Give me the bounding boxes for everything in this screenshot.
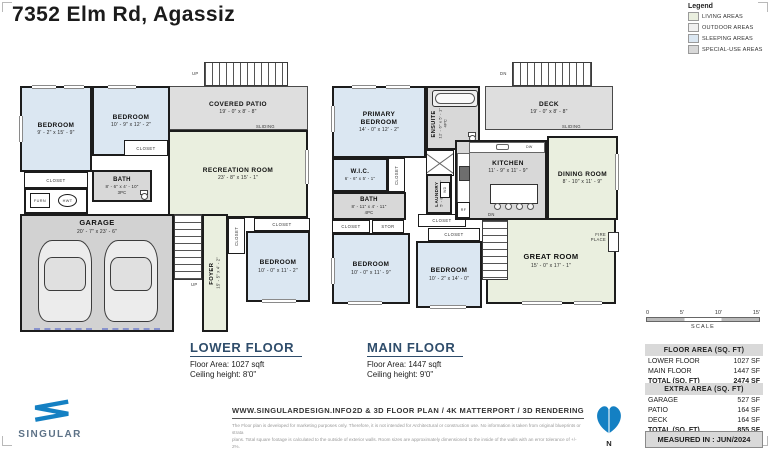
stool-icon <box>505 203 512 210</box>
table-row: PATIO164 SF <box>645 405 763 415</box>
room-dining: DINING ROOM 8' - 10" x 11' - 9" <box>547 136 618 220</box>
closet-label: CLOSET <box>388 158 405 192</box>
hot-water-tank-box: HWT <box>58 194 77 207</box>
closet-label: CLOSET <box>24 172 88 188</box>
window <box>19 116 23 142</box>
lower-floor-heading: LOWER FLOOR Floor Area: 1027 sqft Ceilin… <box>190 339 302 380</box>
legend-item-outdoor: OUTDOOR AREAS <box>688 23 768 32</box>
closet-label: CLOSET <box>254 218 310 231</box>
measured-date-badge: MEASURED IN : JUN/2024 <box>645 431 763 448</box>
extra-area-table: EXTRA AREA (SQ. FT) GARAGE527 SF PATIO16… <box>645 383 763 435</box>
floor-area-table: FLOOR AREA (SQ. FT) LOWER FLOOR1027 SF M… <box>645 344 763 386</box>
stove-icon <box>459 166 470 181</box>
scale-bar-graphic <box>646 317 760 322</box>
room-bedroom-bottom: BEDROOM 10' - 0" x 11' - 2" <box>246 231 310 302</box>
closet-label: CLOSET <box>332 220 370 233</box>
kitchen-label: KITCHEN 11' - 9" x 11' - 9" <box>472 160 544 174</box>
scale-ticks: 0 5' 10' 15' <box>646 310 760 316</box>
patio-stairs <box>204 62 288 86</box>
window <box>348 301 382 305</box>
stool-icon <box>494 203 501 210</box>
sliding-door-label: SLIDING <box>256 124 275 129</box>
bathtub-icon <box>432 90 478 107</box>
room-bedroom-left: BEDROOM 9' - 2" x 15' - 9" <box>20 86 92 172</box>
scale-bar: 0 5' 10' 15' SCALE <box>646 310 760 330</box>
legend-heading: Legend <box>688 3 768 10</box>
main-floor-plan: DN DECK 19' - 0" x 8' - 8" SLIDING PRIMA… <box>330 62 620 334</box>
storage-label: STOR <box>372 220 404 233</box>
main-floor-ceiling: Ceiling height: 9'0" <box>367 370 463 380</box>
window <box>32 85 56 89</box>
room-deck: DECK 19' - 0" x 8' - 8" <box>485 86 613 130</box>
window <box>574 301 602 305</box>
window <box>522 301 562 305</box>
brand-name: SINGULAR <box>8 429 92 440</box>
legend: Legend LIVING AREAS OUTDOOR AREAS SLEEPI… <box>688 3 768 56</box>
window <box>305 150 309 184</box>
bath-fixture-count: 3PC <box>118 190 127 195</box>
scale-label: SCALE <box>646 324 760 330</box>
outdoor-areas-swatch <box>688 23 699 32</box>
services-label: 2D & 3D FLOOR PLAN / 4K MATTERPORT / 3D … <box>352 406 584 415</box>
room-bath-main: BATH 8' - 11" x 4' - 11" 4PC <box>332 192 406 220</box>
fireplace-label: FIRE PLACE <box>582 232 606 243</box>
closet-label: CLOSET <box>124 140 168 156</box>
sliding-door-label: SLIDING <box>562 124 581 129</box>
table-row: DECK164 SF <box>645 415 763 425</box>
sleeping-areas-swatch <box>688 34 699 43</box>
room-wic: W.I.C. 6' - 6" x 5' - 1" <box>332 158 388 192</box>
main-floor-title: MAIN FLOOR <box>367 340 463 357</box>
room-recreation: RECREATION ROOM 23' - 8" x 15' - 1" <box>168 130 308 218</box>
interior-stairs-up <box>174 214 202 280</box>
stairs-up-label: UP <box>192 71 198 76</box>
table-row: LOWER FLOOR1027 SF <box>645 356 763 366</box>
footer-heading-row: WWW.SINGULARDESIGN.INFO 2D & 3D FLOOR PL… <box>232 406 584 419</box>
main-floor-area: Floor Area: 1447 sqft <box>367 360 463 370</box>
stool-icon <box>516 203 523 210</box>
car-icon <box>104 240 158 322</box>
floor-plan-page: 7352 Elm Rd, Agassiz Legend LIVING AREAS… <box>0 0 770 450</box>
north-compass: N <box>586 403 632 448</box>
window <box>108 85 136 89</box>
stool-icon <box>527 203 534 210</box>
kitchen-sink <box>496 144 509 150</box>
disclaimer: The Floor plan is developed for marketin… <box>232 422 584 450</box>
stairs-down-label: DN <box>488 212 495 217</box>
garage-door <box>34 328 92 330</box>
company-logo: SINGULAR DESIGN <box>8 399 92 450</box>
closet-label: CLOSET <box>228 218 245 254</box>
washer-dryer-box: WD <box>440 182 450 198</box>
car-icon <box>38 240 92 322</box>
window <box>386 85 410 89</box>
singular-design-logo-icon <box>28 399 72 425</box>
page-title: 7352 Elm Rd, Agassiz <box>12 3 235 27</box>
window <box>331 106 335 132</box>
legend-item-living: LIVING AREAS <box>688 12 768 21</box>
north-label: N <box>586 439 632 448</box>
deck-stairs <box>512 62 592 86</box>
foyer-label: FOYER 15' - 5" x 4' - 2" <box>209 257 221 290</box>
furnace-box: FURN <box>30 193 50 208</box>
floor-area-header: FLOOR AREA (SQ. FT) <box>645 344 763 356</box>
lower-floor-plan: UP COVERED PATIO 19' - 0" x 8' - 8" SLID… <box>18 62 310 334</box>
interior-stairs-down <box>482 220 508 280</box>
legend-item-sleeping: SLEEPING AREAS <box>688 34 768 43</box>
linen-closet <box>426 150 454 176</box>
room-primary-bedroom: PRIMARY BEDROOM 14' - 0" x 12' - 2" <box>332 86 426 158</box>
lower-floor-ceiling: Ceiling height: 8'0" <box>190 370 302 380</box>
room-bedroom-mid-main: BEDROOM 10' - 2" x 14' - 0" <box>416 241 482 308</box>
lower-floor-title: LOWER FLOOR <box>190 340 302 357</box>
living-areas-swatch <box>688 12 699 21</box>
table-row: MAIN FLOOR1447 SF <box>645 366 763 376</box>
window <box>352 85 376 89</box>
dishwasher-label: DW <box>526 145 533 149</box>
bath-fixture-count: 4PC <box>365 210 374 215</box>
fireplace-icon <box>608 232 619 252</box>
toilet-icon <box>140 190 148 200</box>
legend-item-special: SPECIAL-USE AREAS <box>688 45 768 54</box>
special-use-areas-swatch <box>688 45 699 54</box>
crop-mark-top-left <box>2 2 12 12</box>
fridge-box: RF <box>457 202 470 218</box>
room-bedroom-left-main: BEDROOM 10' - 0" x 11' - 9" <box>332 233 410 304</box>
table-row: GARAGE527 SF <box>645 395 763 405</box>
window <box>64 85 84 89</box>
kitchen-island <box>490 184 538 204</box>
extra-area-header: EXTRA AREA (SQ. FT) <box>645 383 763 395</box>
ensuite-fixture-count: 4PC <box>442 108 447 138</box>
window <box>430 305 466 309</box>
stairs-down-label: DN <box>500 71 507 76</box>
stairs-up-label: UP <box>190 282 198 287</box>
window <box>331 258 335 284</box>
north-compass-icon <box>591 403 627 435</box>
window <box>615 154 619 190</box>
window <box>262 299 296 303</box>
room-foyer: FOYER 15' - 5" x 4' - 2" <box>202 214 228 332</box>
ensuite-label: ENSUITE 12' - 6" x 5' - 1" 4PC <box>431 108 447 139</box>
lower-floor-area: Floor Area: 1027 sqft <box>190 360 302 370</box>
room-covered-patio: COVERED PATIO 19' - 0" x 8' - 8" <box>168 86 308 130</box>
website-url[interactable]: WWW.SINGULARDESIGN.INFO <box>232 406 352 415</box>
closet-label: CLOSET <box>428 228 480 241</box>
garage-door <box>102 328 160 330</box>
main-floor-heading: MAIN FLOOR Floor Area: 1447 sqft Ceiling… <box>367 339 463 380</box>
